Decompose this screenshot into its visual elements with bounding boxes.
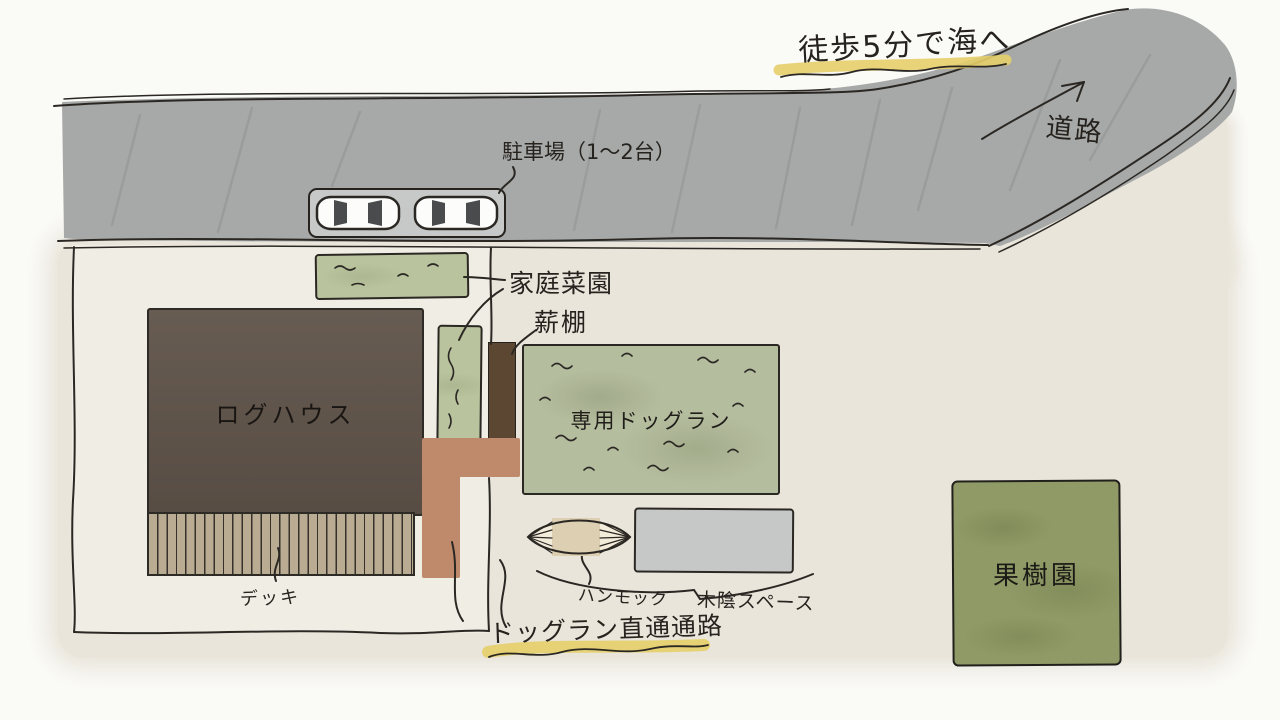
sea-note-label: 徒歩5分で海へ: [797, 14, 1012, 69]
road-label: 道路: [1044, 105, 1106, 150]
vegetable-bed-vertical: [436, 325, 482, 446]
firewood-rack: [488, 342, 516, 440]
dog-run-path-horizontal: [424, 438, 520, 477]
hammock-label: ハンモック: [577, 581, 668, 611]
site-plan-canvas: ログハウス 専用ドッグラン 果樹園: [0, 0, 1280, 720]
dog-run-label: 専用ドッグラン: [571, 405, 732, 435]
orchard-label: 果樹園: [993, 554, 1080, 592]
orchard-area: 果樹園: [951, 479, 1121, 666]
deck: [147, 512, 415, 576]
shade-space-area: [634, 507, 794, 573]
dog-run-area: 専用ドッグラン: [522, 344, 780, 495]
log-house-label: ログハウス: [216, 395, 356, 430]
vegetable-garden-label: 家庭菜園: [509, 264, 613, 300]
ground-wash-right: [988, 118, 1228, 278]
parking-pad: [308, 188, 506, 238]
parking-label: 駐車場（1〜2台）: [502, 136, 676, 166]
log-house: ログハウス: [147, 308, 424, 516]
vegetable-bed-horizontal: [315, 252, 470, 300]
car-icon: [412, 193, 500, 233]
firewood-rack-label: 薪棚: [534, 303, 588, 339]
car-icon: [314, 193, 402, 233]
deck-label: デッキ: [240, 583, 301, 611]
